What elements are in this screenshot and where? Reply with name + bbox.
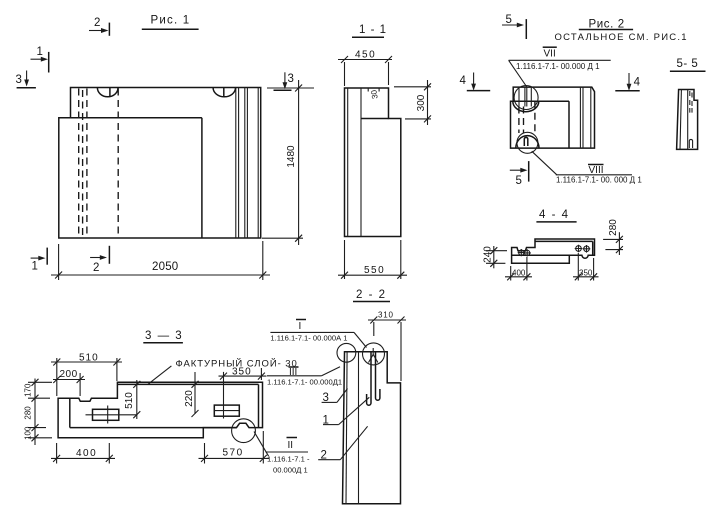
svg-text:I: I — [299, 321, 302, 332]
svg-text:3: 3 — [16, 74, 22, 86]
svg-text:310: 310 — [378, 311, 394, 320]
svg-text:100: 100 — [24, 426, 33, 440]
svg-text:3 — 3: 3 — 3 — [145, 330, 183, 342]
svg-text:3: 3 — [288, 73, 294, 85]
svg-text:450: 450 — [355, 50, 376, 61]
svg-text:1.116.1-7.1- 00. 000 Д 1: 1.116.1-7.1- 00. 000 Д 1 — [556, 176, 642, 185]
svg-text:550: 550 — [364, 265, 385, 276]
svg-text:Рис. 2: Рис. 2 — [589, 19, 625, 31]
svg-text:350: 350 — [232, 367, 252, 378]
svg-text:240: 240 — [483, 246, 494, 263]
svg-text:300: 300 — [416, 94, 427, 111]
svg-text:2050: 2050 — [152, 261, 178, 273]
svg-text:1: 1 — [37, 46, 43, 58]
svg-text:5: 5 — [506, 14, 512, 26]
svg-text:170: 170 — [24, 383, 33, 397]
svg-text:2 - 2: 2 - 2 — [356, 289, 387, 301]
svg-text:1480: 1480 — [286, 145, 297, 168]
svg-text:1.116.1-7.1- 00.000А 1: 1.116.1-7.1- 00.000А 1 — [270, 334, 347, 343]
svg-text:5: 5 — [516, 175, 522, 187]
svg-text:00.000Д 1: 00.000Д 1 — [273, 466, 308, 475]
svg-text:Рис. 1: Рис. 1 — [151, 15, 191, 27]
svg-text:2: 2 — [93, 262, 99, 274]
svg-text:1.116.1-7.1- 00.000 Д 1: 1.116.1-7.1- 00.000 Д 1 — [516, 62, 600, 71]
svg-text:II: II — [288, 440, 294, 451]
svg-text:4: 4 — [460, 75, 467, 87]
svg-text:510: 510 — [124, 392, 135, 409]
svg-text:570: 570 — [223, 448, 244, 459]
svg-text:400: 400 — [512, 269, 526, 278]
svg-text:220: 220 — [184, 390, 195, 407]
svg-text:200: 200 — [60, 369, 78, 380]
svg-text:400: 400 — [76, 448, 97, 459]
svg-text:1: 1 — [32, 261, 38, 273]
svg-text:1.116.1-7.1- 00.000Д1: 1.116.1-7.1- 00.000Д1 — [267, 377, 342, 386]
svg-text:280: 280 — [608, 219, 619, 236]
svg-text:350: 350 — [579, 269, 593, 278]
svg-text:1 - 1: 1 - 1 — [359, 24, 387, 36]
svg-text:510: 510 — [79, 353, 99, 364]
svg-text:4: 4 — [634, 77, 641, 89]
svg-text:2: 2 — [94, 17, 100, 29]
svg-text:VII: VII — [544, 49, 556, 60]
svg-text:ОСТАЛЬНОЕ СМ. РИС.1: ОСТАЛЬНОЕ СМ. РИС.1 — [555, 32, 688, 43]
svg-text:1.116.1-7.1 -: 1.116.1-7.1 - — [267, 455, 310, 464]
svg-text:280: 280 — [24, 406, 33, 420]
svg-text:5- 5: 5- 5 — [677, 58, 699, 70]
svg-text:4 - 4: 4 - 4 — [539, 209, 570, 221]
